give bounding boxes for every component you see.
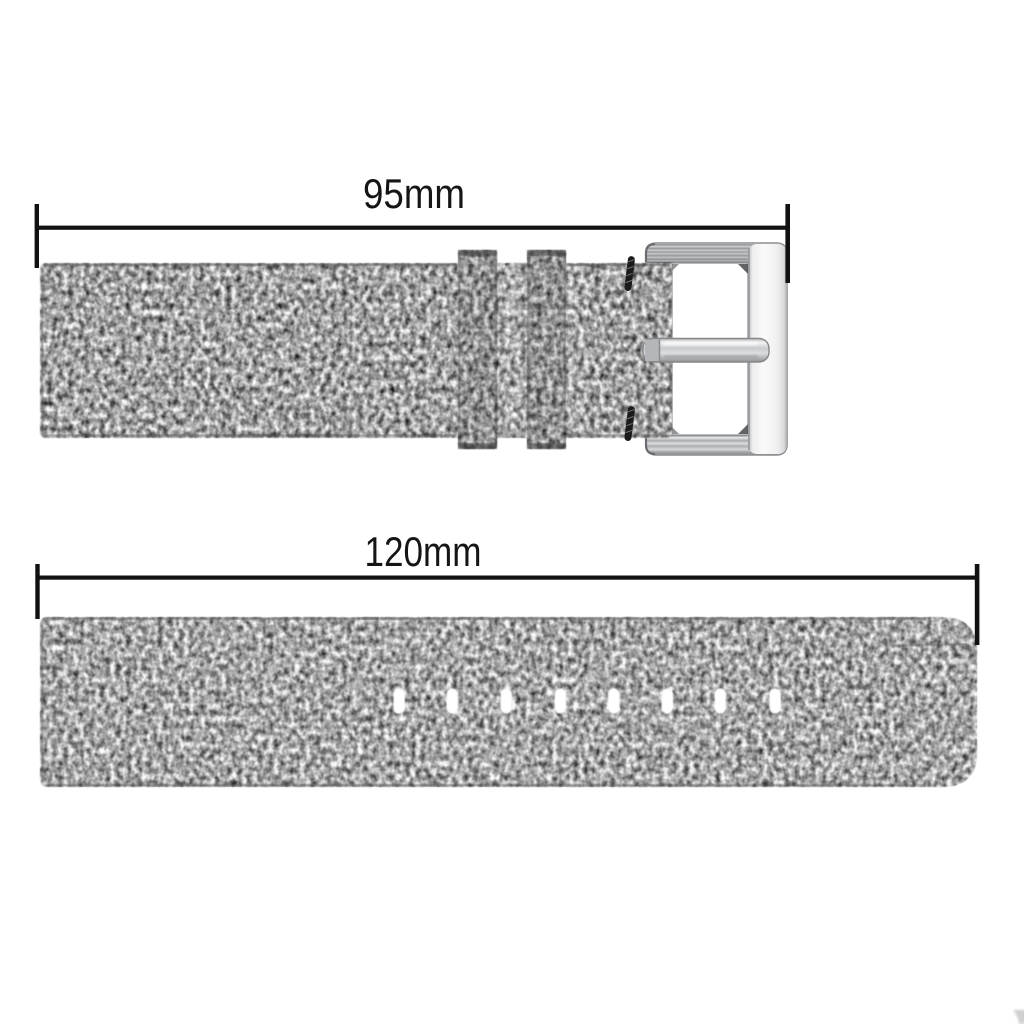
svg-text:120mm: 120mm <box>365 528 482 575</box>
svg-text:95mm: 95mm <box>363 170 465 217</box>
